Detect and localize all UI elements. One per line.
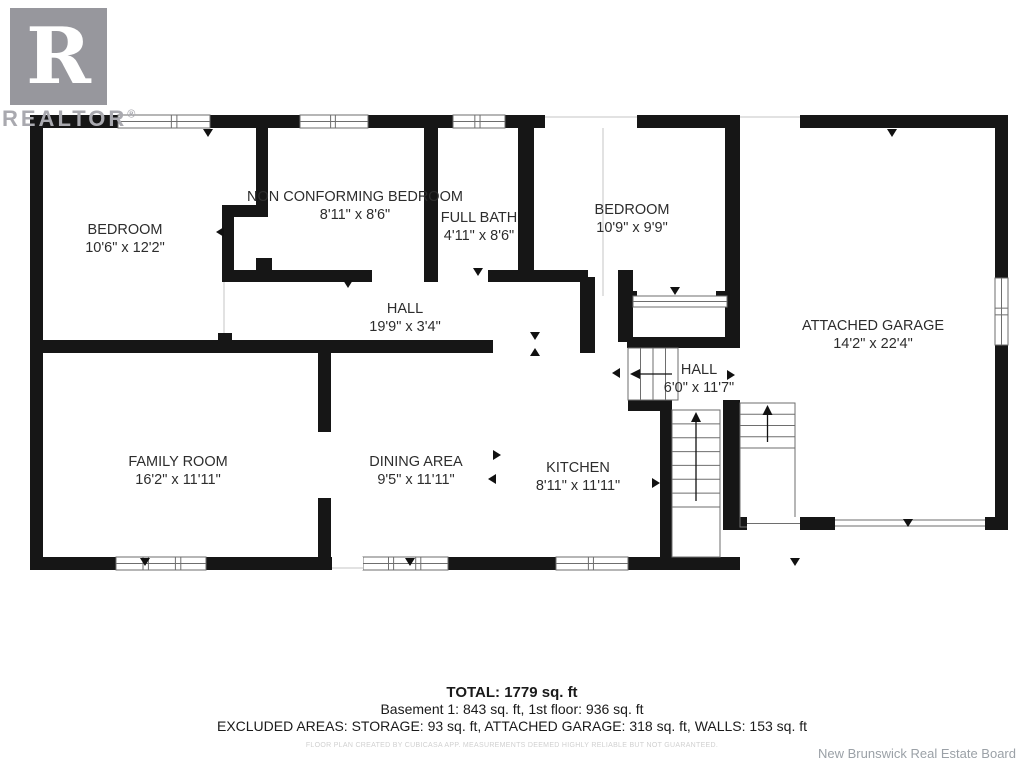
wall-segment xyxy=(318,498,331,570)
room-label-family-room: FAMILY ROOM xyxy=(128,454,227,470)
room-dims-attached-garage: 14'2" x 22'4" xyxy=(833,336,913,352)
threshold-marker xyxy=(652,478,660,488)
room-dims-non-conforming-bedroom: 8'11" x 8'6" xyxy=(320,207,390,223)
room-label-full-bath: FULL BATH xyxy=(441,210,518,226)
threshold-marker xyxy=(216,227,224,237)
board-credit: New Brunswick Real Estate Board xyxy=(818,746,1016,761)
stair-arrow-head xyxy=(630,369,640,379)
wall-segment xyxy=(30,340,493,353)
wall-segment xyxy=(448,557,556,570)
threshold-marker xyxy=(790,558,800,566)
realtor-wordmark: REALTOR® xyxy=(2,106,135,132)
wall-segment xyxy=(995,345,1008,530)
room-dims-bedroom-right: 10'9" x 9'9" xyxy=(596,220,667,236)
realtor-logo-r-glyph: R xyxy=(26,18,91,96)
room-label-kitchen: KITCHEN xyxy=(546,460,610,476)
threshold-marker xyxy=(727,370,735,380)
realtor-logo: R xyxy=(10,8,107,105)
threshold-marker xyxy=(203,129,213,137)
threshold-marker xyxy=(488,474,496,484)
threshold-marker xyxy=(530,348,540,356)
wall-segment xyxy=(637,115,740,128)
wall-segment xyxy=(424,270,438,282)
stair-arrow-head xyxy=(691,412,701,422)
floor-areas-text: Basement 1: 843 sq. ft, 1st floor: 936 s… xyxy=(0,701,1024,718)
room-dims-hall-main: 19'9" x 3'4" xyxy=(369,319,440,335)
room-label-bedroom-left: BEDROOM xyxy=(88,222,163,238)
threshold-marker xyxy=(670,287,680,295)
floor-plan-page: R REALTOR® BEDROOM10'6" x 12'2"NON CONFO… xyxy=(0,0,1024,768)
room-label-dining-area: DINING AREA xyxy=(369,454,463,470)
room-dims-full-bath: 4'11" x 8'6" xyxy=(444,228,514,244)
threshold-marker xyxy=(530,332,540,340)
threshold-marker xyxy=(493,450,501,460)
wall-segment xyxy=(210,115,300,128)
wall-segment xyxy=(318,340,331,432)
wall-segment xyxy=(725,128,740,348)
room-dims-hall-upper: 6'0" x 11'7" xyxy=(664,380,734,396)
wall-segment xyxy=(723,400,740,530)
total-area-text: TOTAL: 1779 sq. ft xyxy=(0,684,1024,701)
wall-segment xyxy=(368,115,453,128)
wall-segment xyxy=(800,517,835,530)
wall-segment xyxy=(580,277,595,353)
wall-segment xyxy=(488,270,588,282)
room-label-bedroom-right: BEDROOM xyxy=(595,202,670,218)
room-dims-dining-area: 9'5" x 11'11" xyxy=(377,472,454,488)
wall-segment xyxy=(505,115,545,128)
wall-segment xyxy=(30,557,116,570)
wall-segment xyxy=(800,115,1008,128)
wall-segment xyxy=(256,258,272,270)
threshold-marker xyxy=(612,368,620,378)
threshold-marker xyxy=(887,129,897,137)
room-label-hall-main: HALL xyxy=(387,301,423,317)
wall-segment xyxy=(737,517,747,530)
room-label-hall-upper: HALL xyxy=(681,362,717,378)
floor-plan-canvas: BEDROOM10'6" x 12'2"NON CONFORMING BEDRO… xyxy=(0,0,1024,660)
wall-segment xyxy=(206,557,332,570)
area-summary: TOTAL: 1779 sq. ft Basement 1: 843 sq. f… xyxy=(0,684,1024,735)
registered-trademark-symbol: ® xyxy=(127,109,135,121)
wall-segment xyxy=(628,400,672,411)
room-label-attached-garage: ATTACHED GARAGE xyxy=(802,318,944,334)
wall-segment xyxy=(518,128,534,270)
threshold-marker xyxy=(473,268,483,276)
room-label-non-conforming-bedroom: NON CONFORMING BEDROOM xyxy=(247,189,463,205)
room-dims-bedroom-left: 10'6" x 12'2" xyxy=(85,240,165,256)
stair-arrow-head xyxy=(763,405,773,415)
room-dims-kitchen: 8'11" x 11'11" xyxy=(536,478,620,494)
wall-segment xyxy=(995,128,1008,278)
wall-segment xyxy=(660,400,672,570)
wall-segment xyxy=(628,557,740,570)
threshold-marker xyxy=(343,280,353,288)
excluded-areas-text: EXCLUDED AREAS: STORAGE: 93 sq. ft, ATTA… xyxy=(0,718,1024,735)
room-dims-family-room: 16'2" x 11'11" xyxy=(135,472,220,488)
wall-segment xyxy=(627,337,727,348)
